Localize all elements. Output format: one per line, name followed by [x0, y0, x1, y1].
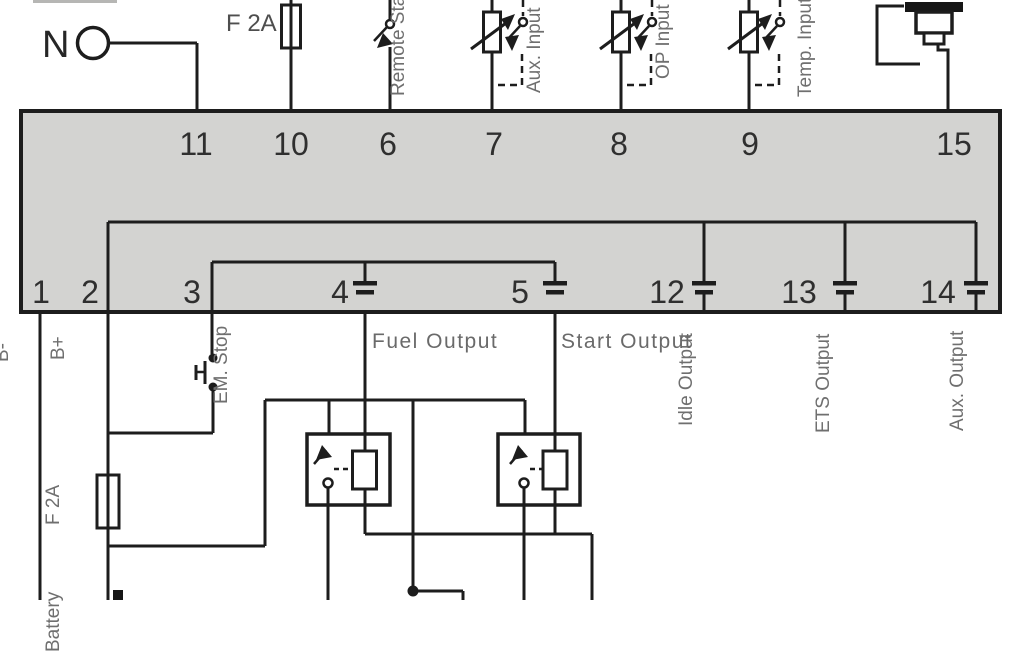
op-input-potentiometer-icon — [600, 0, 656, 112]
fuse-icon — [282, 0, 301, 112]
em-stop-label: EM. Stop — [211, 326, 233, 404]
terminal-8: 8 — [610, 126, 628, 163]
fuse-top-label: F 2A — [226, 10, 277, 38]
fuel-relay-icon — [307, 312, 390, 600]
terminal-6: 6 — [379, 126, 397, 163]
fuse-bottom-label: F 2A — [43, 485, 65, 525]
coil-return-rail — [365, 534, 592, 600]
terminal-13: 13 — [781, 274, 817, 311]
remote-start-label: Remote Start — [388, 0, 410, 96]
terminal-10: 10 — [273, 126, 309, 163]
battery-label: Battery — [43, 592, 65, 652]
neutral-terminal-icon — [78, 28, 198, 113]
neutral-label: N — [42, 24, 69, 67]
aux-input-potentiometer-icon — [471, 0, 527, 112]
terminal-1: 1 — [32, 274, 50, 311]
wiring-diagram: N F 2A Remote Start Aux. Input OP Input … — [0, 0, 1024, 600]
terminal-3: 3 — [183, 274, 201, 311]
temp-input-label: Temp. Input — [795, 0, 817, 97]
temp-sensor-icon — [877, 2, 963, 112]
ets-output-label: ETS Output — [813, 334, 835, 433]
terminal-14: 14 — [920, 274, 956, 311]
b-minus-label: B- — [0, 343, 14, 362]
terminal-9: 9 — [741, 126, 759, 163]
terminal-7: 7 — [485, 126, 503, 163]
aux-input-label: Aux. Input — [524, 7, 546, 93]
b-plus-label: B+ — [48, 336, 70, 360]
terminal-11: 11 — [179, 126, 212, 163]
start-relay-icon — [498, 312, 580, 600]
em-stop-pushbutton-icon — [108, 312, 218, 433]
cropped-artifact — [33, 0, 117, 3]
terminal-12: 12 — [649, 274, 685, 311]
op-input-label: OP Input — [653, 4, 675, 79]
aux-output-label: Aux. Output — [947, 331, 969, 431]
start-output-label: Start Output — [561, 330, 692, 354]
temp-input-potentiometer-icon — [728, 0, 784, 112]
terminal-5: 5 — [511, 274, 529, 311]
b-plus-fuse-icon — [97, 312, 123, 600]
fuel-output-label: Fuel Output — [372, 330, 498, 354]
terminal-4: 4 — [331, 274, 349, 311]
battery-icon — [113, 590, 123, 600]
terminal-15: 15 — [936, 126, 972, 163]
terminal-2: 2 — [81, 274, 99, 311]
